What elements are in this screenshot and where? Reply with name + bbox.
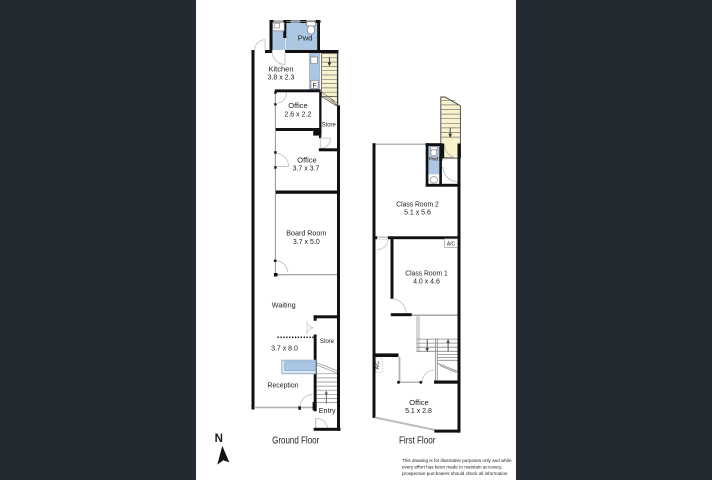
svg-text:Pwd: Pwd — [429, 156, 439, 162]
svg-text:Kitchen: Kitchen — [268, 65, 293, 74]
svg-text:This drawing is for illustrati: This drawing is for illustrative purpose… — [402, 458, 512, 463]
svg-text:Pwd: Pwd — [298, 34, 313, 43]
svg-text:Ground Floor: Ground Floor — [272, 435, 320, 446]
svg-text:3.7 x 3.7: 3.7 x 3.7 — [293, 165, 320, 172]
svg-text:Waiting: Waiting — [272, 301, 296, 310]
svg-text:3.7 x 5.0: 3.7 x 5.0 — [293, 239, 320, 246]
svg-text:prospective purchasers should: prospective purchasers should check all … — [402, 471, 508, 476]
svg-text:F: F — [313, 82, 317, 89]
svg-text:Store: Store — [322, 122, 337, 129]
svg-text:Office: Office — [409, 398, 428, 407]
svg-text:Reception: Reception — [268, 380, 299, 389]
svg-text:Store: Store — [320, 338, 335, 345]
svg-text:3.7 x 8.0: 3.7 x 8.0 — [271, 346, 298, 353]
svg-text:4.0 x 4.6: 4.0 x 4.6 — [413, 278, 440, 285]
svg-text:First Floor: First Floor — [399, 435, 436, 446]
svg-text:5.1 x 2.8: 5.1 x 2.8 — [405, 408, 432, 415]
svg-text:3.8 x 2.3: 3.8 x 2.3 — [268, 74, 295, 81]
svg-text:Office: Office — [297, 156, 316, 165]
svg-text:Class Room 1: Class Room 1 — [405, 269, 448, 278]
svg-text:Office: Office — [288, 101, 307, 110]
svg-text:every effort has been made to: every effort has been made to maintain a… — [402, 465, 502, 470]
svg-text:N: N — [215, 433, 223, 445]
svg-text:Class Room 2: Class Room 2 — [396, 200, 439, 209]
svg-text:2.6 x 2.2: 2.6 x 2.2 — [284, 112, 311, 119]
svg-text:A/C: A/C — [447, 242, 456, 248]
svg-text:Board Room: Board Room — [286, 228, 326, 237]
svg-text:5.1 x 5.6: 5.1 x 5.6 — [404, 209, 431, 216]
svg-text:Entry: Entry — [319, 406, 336, 415]
svg-text:A/C: A/C — [375, 361, 381, 370]
